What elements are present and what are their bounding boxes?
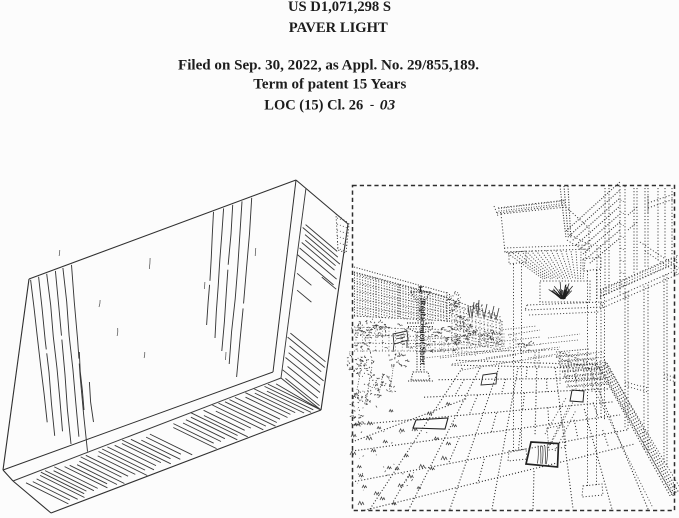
svg-text:Filed on Sep. 30, 2022, as App: Filed on Sep. 30, 2022, as Appl. No. 29/…	[178, 58, 479, 74]
svg-text:US D1,071,298 S: US D1,071,298 S	[288, 0, 391, 15]
svg-text:Replacement Sheet: Replacement Sheet	[419, 300, 428, 365]
svg-text:LOC (15) Cl. 26: LOC (15) Cl. 26	[264, 97, 363, 113]
svg-text:03: 03	[380, 97, 396, 113]
svg-text:PAVER LIGHT: PAVER LIGHT	[289, 20, 388, 36]
svg-text:-: -	[370, 96, 374, 111]
svg-text:Term of patent 15 Years: Term of patent 15 Years	[253, 77, 406, 93]
